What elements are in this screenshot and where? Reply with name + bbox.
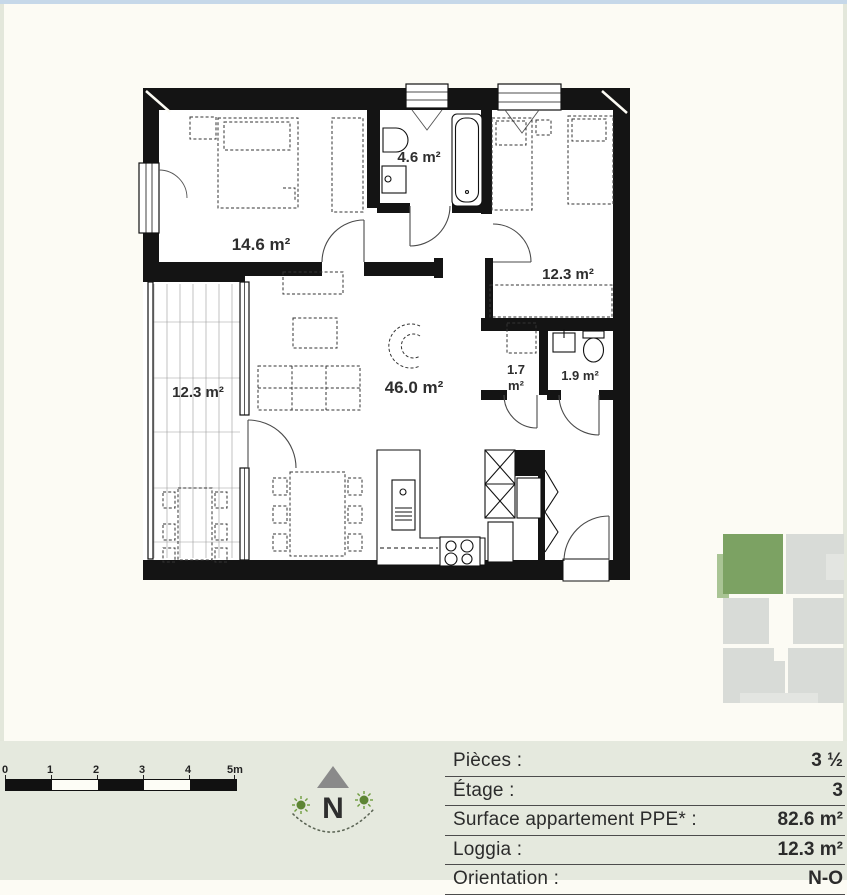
info-row-surface: Surface appartement PPE* : 82.6 m² xyxy=(445,806,845,836)
apartment-info-table: Pièces : 3 ½ Étage : 3 Surface apparteme… xyxy=(445,747,845,895)
info-label: Étage : xyxy=(453,780,515,802)
washing-machine-icon xyxy=(382,166,406,193)
cabinet-icon xyxy=(517,478,541,518)
bathtub-icon xyxy=(452,114,482,206)
scale-bar: 0 1 2 3 4 5m xyxy=(5,764,237,794)
north-compass: N xyxy=(283,760,383,850)
room-label-living: 46.0 m² xyxy=(385,378,444,397)
room-label-reduit-1: 1.7 xyxy=(507,362,525,377)
minimap-block-light xyxy=(826,554,844,580)
window-top-strip xyxy=(0,0,847,4)
stove-icon xyxy=(440,537,480,566)
room-label-loggia: 12.3 m² xyxy=(172,384,224,401)
info-row-etage: Étage : 3 xyxy=(445,777,845,807)
scale-segment xyxy=(144,780,190,790)
info-label: Orientation : xyxy=(453,868,559,890)
scale-segment xyxy=(6,780,52,790)
north-arrow-icon xyxy=(317,766,349,788)
room-label-bathroom: 4.6 m² xyxy=(397,149,440,166)
toilet-icon xyxy=(583,331,604,362)
floor-plan: 14.6 m² 4.6 m² 12.3 m² 46.0 m² 1.7 m² 1.… xyxy=(135,80,637,588)
entrance-opening xyxy=(563,559,609,581)
loggia-railing xyxy=(148,282,153,559)
scale-segment xyxy=(98,780,144,790)
scale-bar-segments xyxy=(5,779,237,791)
info-value: 12.3 m² xyxy=(778,839,843,861)
minimap-block xyxy=(793,598,844,644)
scale-segment xyxy=(190,780,236,790)
room-label-reduit-2: m² xyxy=(508,378,525,393)
cabinet-2-icon xyxy=(488,522,513,562)
minimap-block-light xyxy=(740,693,818,703)
tall-cabinet-icon xyxy=(485,450,515,518)
room-label-bedroom-2: 12.3 m² xyxy=(542,266,594,283)
minimap-notch xyxy=(774,648,788,661)
sun-icon xyxy=(355,791,373,809)
wc-sink-icon xyxy=(553,329,575,352)
info-label: Surface appartement PPE* : xyxy=(453,809,697,831)
info-row-pieces: Pièces : 3 ½ xyxy=(445,747,845,777)
info-value: 82.6 m² xyxy=(778,809,843,831)
info-value: 3 ½ xyxy=(811,750,843,772)
info-row-loggia: Loggia : 12.3 m² xyxy=(445,836,845,866)
kitchen-sink-icon xyxy=(392,480,415,530)
info-label: Loggia : xyxy=(453,839,522,861)
scale-segment xyxy=(52,780,98,790)
minimap-block-highlight xyxy=(723,534,783,594)
site-minimap xyxy=(714,528,847,708)
sun-icon xyxy=(292,796,310,814)
minimap-block xyxy=(723,598,769,644)
room-label-bedroom-1: 14.6 m² xyxy=(232,235,291,254)
north-letter: N xyxy=(322,792,344,825)
info-label: Pièces : xyxy=(453,750,522,772)
room-label-wc: 1.9 m² xyxy=(561,368,599,383)
info-value: 3 xyxy=(832,780,843,802)
info-value: N-O xyxy=(808,868,843,890)
